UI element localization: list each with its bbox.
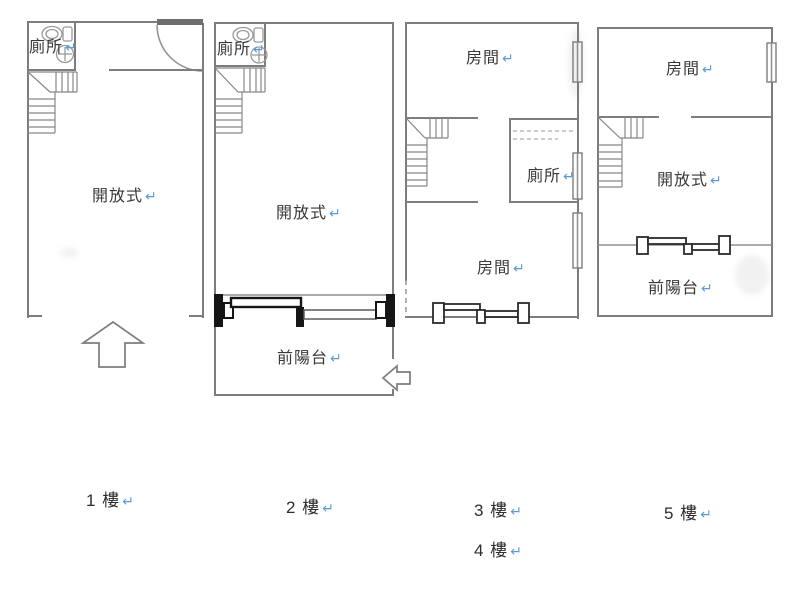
return-mark-icon: ↵ (710, 172, 723, 188)
label-text: 開放式 (657, 172, 708, 189)
label-toilet-floor1: 廁所↵ (29, 39, 78, 57)
label-room-bottom-floor3-4: 房間↵ (477, 260, 526, 278)
label-toilet-floor2: 廁所↵ (217, 41, 266, 59)
caption-floor-4: 4 樓↵ (474, 542, 523, 561)
return-mark-icon: ↵ (701, 280, 714, 296)
shelf-dashes (513, 131, 575, 139)
return-mark-icon: ↵ (65, 39, 78, 55)
label-text: 開放式 (92, 188, 143, 205)
return-mark-icon: ↵ (510, 503, 523, 519)
balcony-window-icon (433, 303, 529, 323)
caption-text: 3 樓 (474, 501, 508, 520)
caption-floor-1: 1 樓↵ (86, 492, 135, 511)
caption-floor-3: 3 樓↵ (474, 502, 523, 521)
return-mark-icon: ↵ (253, 41, 266, 57)
label-text: 廁所 (527, 168, 561, 185)
window-icon (767, 43, 776, 82)
label-text: 開放式 (276, 205, 327, 222)
return-mark-icon: ↵ (122, 493, 135, 509)
label-text: 房間 (477, 260, 511, 277)
label-room-top-floor3-4: 房間↵ (466, 50, 515, 68)
label-front-balcony-floor5: 前陽台↵ (648, 280, 714, 298)
label-text: 房間 (666, 61, 700, 78)
label-open-area-floor1: 開放式↵ (92, 188, 158, 206)
label-text: 前陽台 (648, 280, 699, 297)
balcony-window-icon (214, 294, 395, 327)
window-icon (573, 213, 582, 268)
floor-plan-sheet: 廁所↵ 開放式↵ 廁所↵ 開放式↵ 前陽台↵ 房間↵ 廁所↵ 房間↵ 房間↵ 開… (0, 0, 800, 590)
caption-text: 1 樓 (86, 491, 120, 510)
label-room-top-floor5: 房間↵ (666, 61, 715, 79)
return-mark-icon: ↵ (700, 506, 713, 522)
label-open-area-floor2: 開放式↵ (276, 205, 342, 223)
return-mark-icon: ↵ (330, 350, 343, 366)
caption-floor-5: 5 樓↵ (664, 505, 713, 524)
staircase-icon (215, 68, 265, 133)
return-mark-icon: ↵ (322, 500, 335, 516)
label-text: 廁所 (217, 41, 251, 58)
staircase-icon (406, 118, 448, 186)
entrance-arrow-up-icon (83, 322, 143, 367)
return-mark-icon: ↵ (502, 50, 515, 66)
scan-artifact (60, 248, 78, 258)
return-mark-icon: ↵ (329, 205, 342, 221)
label-open-area-floor5: 開放式↵ (657, 172, 723, 190)
door-swing-icon (157, 19, 203, 71)
caption-text: 5 樓 (664, 504, 698, 523)
staircase-icon (28, 72, 77, 133)
scan-artifact (735, 255, 769, 295)
caption-floor-2: 2 樓↵ (286, 499, 335, 518)
return-mark-icon: ↵ (563, 168, 576, 184)
entrance-arrow-left-icon (383, 366, 410, 390)
caption-text: 4 樓 (474, 541, 508, 560)
label-text: 前陽台 (277, 350, 328, 367)
return-mark-icon: ↵ (513, 260, 526, 276)
label-front-balcony-floor2: 前陽台↵ (277, 350, 343, 368)
staircase-icon (598, 117, 643, 187)
caption-text: 2 樓 (286, 498, 320, 517)
label-toilet-floor3-4: 廁所↵ (527, 168, 576, 186)
label-text: 廁所 (29, 39, 63, 56)
return-mark-icon: ↵ (510, 543, 523, 559)
return-mark-icon: ↵ (702, 61, 715, 77)
scan-artifact (568, 28, 584, 98)
return-mark-icon: ↵ (145, 188, 158, 204)
label-text: 房間 (466, 50, 500, 67)
